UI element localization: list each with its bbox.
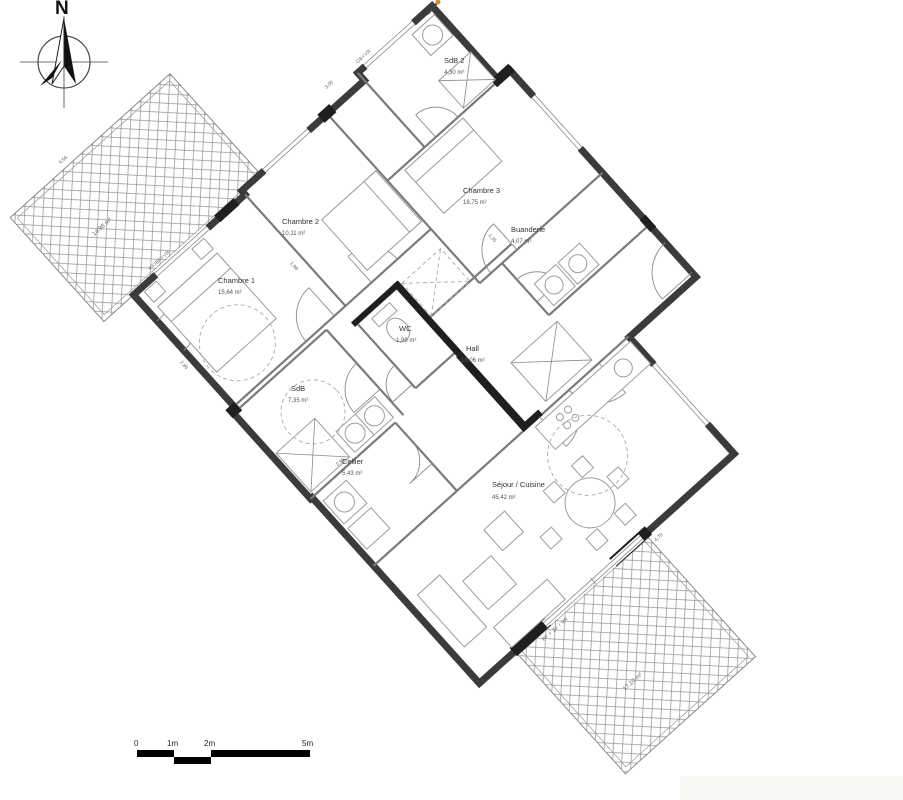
- floor-plan: 14,98 m² 17,10 m² PF/BF+VR OB+VR PF + ZF…: [4, 0, 903, 800]
- scale-seg-2: [174, 757, 211, 764]
- svg-text:18,06 m²: 18,06 m²: [461, 358, 485, 364]
- svg-text:7,35 m²: 7,35 m²: [288, 398, 308, 404]
- svg-text:Buanderie: Buanderie: [511, 225, 545, 234]
- scale-seg-1: [137, 750, 174, 757]
- scale-tick-5m: 5m: [302, 739, 313, 748]
- svg-text:15,64 m²: 15,64 m²: [218, 290, 242, 296]
- svg-text:10,11 m²: 10,11 m²: [282, 231, 305, 237]
- dim-1: 4,56: [58, 155, 69, 166]
- svg-text:4,07 m²: 4,07 m²: [511, 239, 531, 245]
- floorplan-page: 14,98 m² 17,10 m² PF/BF+VR OB+VR PF + ZF…: [0, 0, 903, 800]
- dim-2: 3,05: [324, 79, 335, 90]
- svg-text:18,75 m²: 18,75 m²: [463, 200, 487, 206]
- svg-text:Hall: Hall: [466, 344, 479, 353]
- footer-strip: [680, 776, 903, 800]
- north-label: N: [55, 0, 69, 19]
- compass: N: [20, 0, 108, 108]
- svg-text:Chambre 3: Chambre 3: [463, 186, 500, 195]
- scale-seg-3: [211, 750, 310, 757]
- svg-text:1,99 m²: 1,99 m²: [396, 338, 416, 344]
- svg-text:SdB: SdB: [291, 384, 305, 393]
- scale-tick-1m: 1m: [167, 739, 178, 748]
- svg-text:SdB 2: SdB 2: [444, 56, 464, 65]
- svg-text:4,30 m²: 4,30 m²: [444, 70, 464, 76]
- compass-needle-dark: [64, 18, 76, 84]
- dim-7: 2,80: [178, 360, 189, 371]
- svg-text:Cellier: Cellier: [342, 457, 364, 466]
- floorplan-canvas: 14,98 m² 17,10 m² PF/BF+VR OB+VR PF + ZF…: [0, 0, 903, 800]
- svg-text:5,43 m²: 5,43 m²: [342, 471, 362, 477]
- svg-text:WC: WC: [399, 324, 412, 333]
- scale-tick-2m: 2m: [204, 739, 215, 748]
- scale-tick-0: 0: [134, 739, 139, 748]
- svg-text:Chambre 1: Chambre 1: [218, 276, 255, 285]
- svg-text:Chambre 2: Chambre 2: [282, 217, 319, 226]
- svg-text:Séjour / Cuisine: Séjour / Cuisine: [492, 480, 545, 489]
- svg-text:45,42 m²: 45,42 m²: [492, 495, 516, 501]
- scale-bar: 0 1m 2m 5m: [134, 739, 313, 764]
- dim-6: 4,78: [653, 532, 664, 543]
